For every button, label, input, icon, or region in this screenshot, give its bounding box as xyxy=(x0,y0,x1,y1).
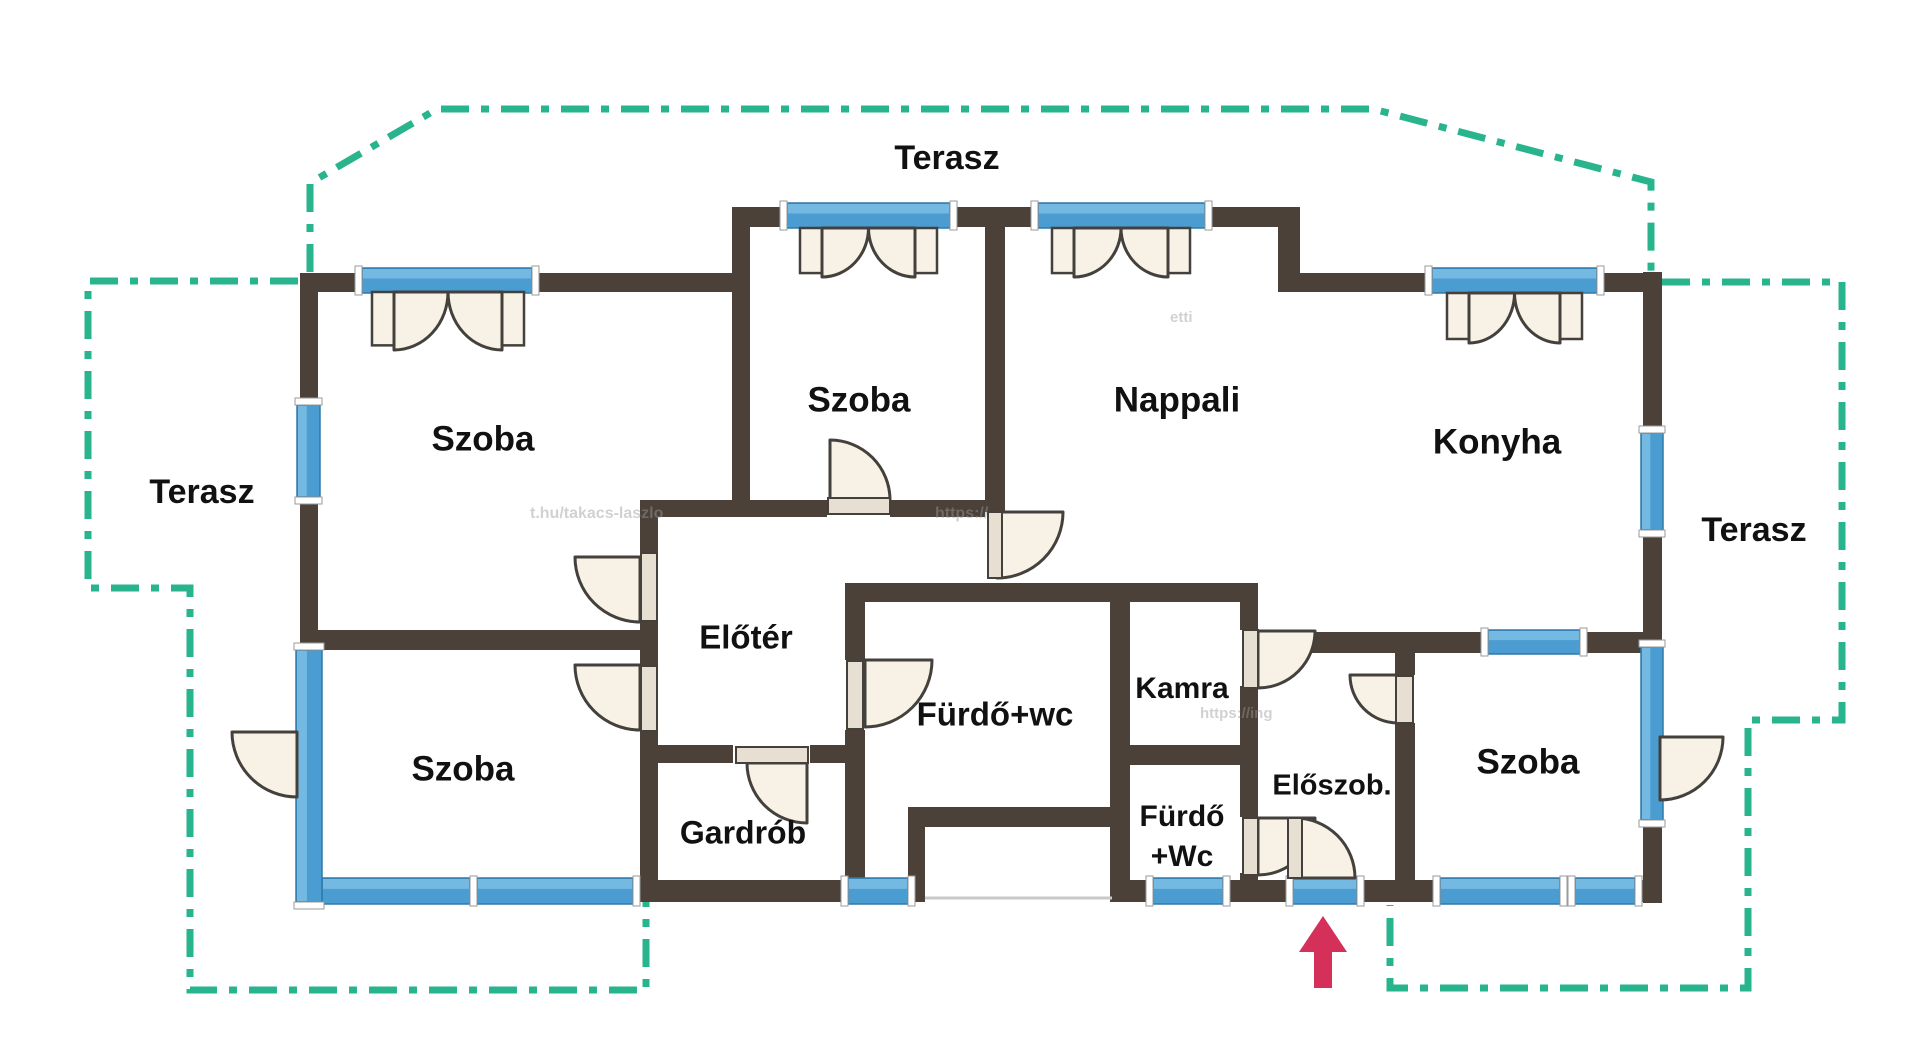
window-szoba-right-bottom-1-cap xyxy=(1433,876,1440,906)
label-furdo-wc-small-2: +Wc xyxy=(1151,840,1214,873)
wall xyxy=(1240,583,1258,630)
curtain-nappali-leaf-right xyxy=(1168,228,1190,273)
window-door-right-wall-cap xyxy=(1639,640,1665,647)
curtain-nappali-leaf-left xyxy=(1052,228,1074,273)
wall xyxy=(732,207,787,227)
entrance-arrow xyxy=(1299,916,1347,988)
window-szoba-right-bottom-2-cap xyxy=(1635,876,1642,906)
floor-plan: t.hu/takacs-laszlohttps://ettihttps://in… xyxy=(0,0,1920,1052)
curtain-szoba-top-left-leaf-left xyxy=(372,292,394,345)
door-leaf xyxy=(988,512,1002,578)
door-szoba-right xyxy=(1350,675,1398,723)
window-right-wall-upper-cap xyxy=(1639,530,1665,537)
window-szoba-middle-cap xyxy=(950,201,957,230)
window-middle-bottom-cap xyxy=(841,876,848,906)
wall xyxy=(640,650,658,665)
window-konyha-highlight xyxy=(1433,269,1596,279)
wall xyxy=(1300,273,1432,292)
wall xyxy=(845,583,1258,602)
curtain-nappali xyxy=(1074,228,1168,277)
label-gardrob: Gardrób xyxy=(680,814,806,850)
wall xyxy=(1643,530,1662,647)
window-furdo-wc-small-cap xyxy=(1146,876,1153,906)
window-szoba-bottom-2-cap xyxy=(470,876,477,906)
window-nappali-highlight xyxy=(1039,204,1204,214)
label-konyha: Konyha xyxy=(1433,422,1562,461)
window-szoba-left-wall-highlight xyxy=(298,406,307,496)
window-entrance-door-highlight xyxy=(1294,879,1356,889)
entrance-arrow-stem xyxy=(1314,950,1332,988)
label-nappali: Nappali xyxy=(1114,380,1240,419)
window-szoba-right-bottom-1-highlight xyxy=(1441,879,1559,889)
window-konyha-cap xyxy=(1425,266,1432,295)
wall xyxy=(640,622,658,650)
watermark-text: https:// xyxy=(935,505,989,522)
label-szoba-top-left: Szoba xyxy=(431,419,535,458)
label-eloszoba: Előszob. xyxy=(1272,770,1391,802)
door-leaf xyxy=(828,498,890,514)
window-szoba-top-left-highlight xyxy=(363,269,531,279)
watermark-text: https://ing xyxy=(1200,705,1272,722)
door-szoba-top-left xyxy=(575,557,640,622)
window-right-wall-upper-cap xyxy=(1639,426,1665,433)
window-szoba-bottom-2-cap xyxy=(633,876,640,906)
label-terasz-left: Terasz xyxy=(149,473,254,511)
wall xyxy=(1223,880,1293,902)
curtain-szoba-middle-leaf-right xyxy=(915,228,937,273)
window-door-right-wall-cap xyxy=(1639,820,1665,827)
door-nappali xyxy=(997,512,1063,578)
window-szoba-bottom-1-highlight xyxy=(323,879,469,889)
door-leaf xyxy=(1288,818,1302,878)
label-terasz-right: Terasz xyxy=(1701,511,1806,549)
door-leaf xyxy=(1243,630,1258,688)
window-szoba-right-bottom-1-cap xyxy=(1560,876,1567,906)
label-szoba-bottom-left: Szoba xyxy=(411,749,515,788)
window-right-wall-upper-highlight xyxy=(1642,434,1650,529)
wall xyxy=(810,745,845,763)
window-door-right-wall-highlight xyxy=(1642,648,1650,819)
wall xyxy=(640,732,658,880)
label-terasz-top: Terasz xyxy=(894,139,999,177)
window-entrance-door-cap xyxy=(1286,876,1293,906)
label-eloter: Előtér xyxy=(699,619,793,656)
curtain-konyha-leaf-right xyxy=(1560,293,1582,339)
wall xyxy=(1278,207,1300,292)
wall xyxy=(640,500,827,517)
window-furdo-wc-small-highlight xyxy=(1154,879,1222,889)
label-szoba-middle: Szoba xyxy=(807,380,911,419)
window-middle-bottom-highlight xyxy=(849,879,907,889)
wall xyxy=(732,227,750,502)
wall xyxy=(633,880,848,902)
door-leaf xyxy=(641,553,657,621)
window-konyha-szoba-cap xyxy=(1580,628,1587,656)
wall xyxy=(300,630,658,650)
door-terrace-west xyxy=(232,732,297,797)
terrace-top-outline xyxy=(310,109,1651,272)
door-leaf xyxy=(1243,818,1258,875)
wall xyxy=(1643,272,1662,433)
label-kamra: Kamra xyxy=(1135,672,1229,705)
door-leaf xyxy=(641,666,657,731)
window-szoba-middle-highlight xyxy=(788,204,949,214)
door-terrace-right xyxy=(1660,737,1723,800)
curtain-konyha xyxy=(1469,293,1560,343)
wall xyxy=(908,807,1112,827)
window-konyha-szoba-cap xyxy=(1481,628,1488,656)
window-west-wall-glazed-cap xyxy=(294,902,324,909)
wall xyxy=(1357,880,1440,902)
window-entrance-door-cap xyxy=(1357,876,1364,906)
window-szoba-bottom-2-highlight xyxy=(478,879,632,889)
curtain-konyha-leaf-left xyxy=(1447,293,1469,339)
door-entrance xyxy=(1295,818,1355,878)
window-nappali-cap xyxy=(1205,201,1212,230)
window-konyha-cap xyxy=(1597,266,1604,295)
wall xyxy=(657,745,733,763)
floor-plan-canvas: t.hu/takacs-laszlohttps://ettihttps://in… xyxy=(0,0,1920,1052)
wall xyxy=(640,517,658,552)
door-kamra xyxy=(1258,631,1315,688)
wall xyxy=(1395,723,1415,902)
window-szoba-left-wall-cap xyxy=(295,398,322,405)
wall xyxy=(950,207,1038,227)
door-leaf xyxy=(1396,676,1413,723)
door-szoba-bottom-left xyxy=(575,665,640,730)
door-leaf xyxy=(847,661,863,729)
terrace-outline xyxy=(88,109,1842,990)
entrance-arrow-head xyxy=(1299,916,1347,952)
window-konyha-szoba-highlight xyxy=(1489,631,1579,640)
window-szoba-right-bottom-2-highlight xyxy=(1576,879,1634,889)
door-leaf xyxy=(736,747,808,763)
wall xyxy=(985,227,1005,512)
wall xyxy=(532,273,750,292)
curtain-szoba-top-left-leaf-right xyxy=(502,292,524,345)
window-west-wall-glazed-cap xyxy=(294,643,324,650)
window-szoba-right-bottom-2-cap xyxy=(1568,876,1575,906)
watermark-text: etti xyxy=(1170,309,1193,326)
curtain-szoba-middle xyxy=(822,228,915,277)
window-szoba-top-left-cap xyxy=(355,266,362,295)
door-szoba-middle xyxy=(830,440,890,500)
label-furdo-wc-small-1: Fürdő xyxy=(1140,800,1225,833)
window-middle-bottom-cap xyxy=(908,876,915,906)
label-szoba-right: Szoba xyxy=(1476,742,1580,781)
label-furdo-wc: Fürdő+wc xyxy=(917,696,1074,733)
window-szoba-top-left-cap xyxy=(532,266,539,295)
window-nappali-cap xyxy=(1031,201,1038,230)
window-furdo-wc-small-cap xyxy=(1223,876,1230,906)
window-szoba-middle-cap xyxy=(780,201,787,230)
wall xyxy=(1110,745,1258,765)
wall xyxy=(845,602,865,660)
wall xyxy=(1395,653,1415,675)
watermark-text: t.hu/takacs-laszlo xyxy=(530,505,664,522)
curtain-szoba-middle-leaf-left xyxy=(800,228,822,273)
curtain-szoba-top-left xyxy=(394,292,502,350)
window-szoba-left-wall-cap xyxy=(295,497,322,504)
